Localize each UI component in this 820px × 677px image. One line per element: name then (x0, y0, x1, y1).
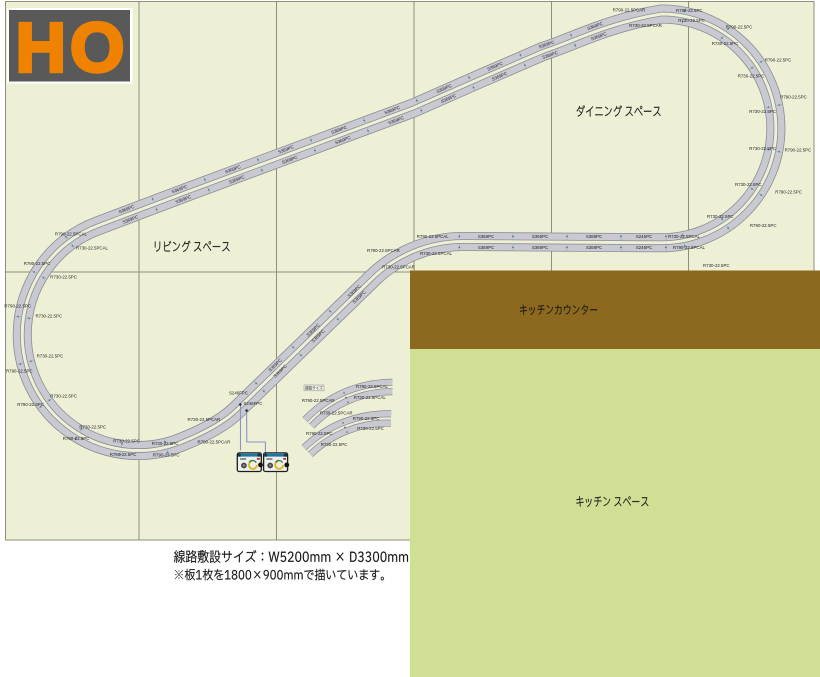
svg-text:R730-22.5PC: R730-22.5PC (37, 353, 64, 358)
svg-text:R730-22.5PC: R730-22.5PC (79, 424, 106, 429)
svg-text:R730-22.5PC: R730-22.5PC (707, 214, 734, 219)
svg-text:R730-22.5PC: R730-22.5PC (50, 393, 77, 398)
svg-text:R790-22.5PCAR: R790-22.5PCAR (367, 248, 400, 253)
svg-text:S246FPC: S246FPC (243, 401, 262, 406)
svg-text:R790-22.5PC: R790-22.5PC (153, 453, 180, 458)
svg-text:R790-22.5PC: R790-22.5PC (306, 431, 333, 436)
svg-text:S369PC: S369PC (532, 245, 548, 250)
svg-text:R790-22.5PC: R790-22.5PC (110, 452, 137, 457)
svg-text:R790-22.5PC: R790-22.5PC (785, 147, 812, 152)
svg-text:R790-22.5PC: R790-22.5PC (63, 436, 90, 441)
svg-text:R790-22.5PC: R790-22.5PC (4, 303, 31, 308)
svg-text:S246FPC: S246FPC (229, 391, 248, 396)
svg-text:S369PC: S369PC (586, 234, 602, 239)
svg-text:HO: HO (16, 9, 129, 87)
svg-text:S369PC: S369PC (478, 234, 494, 239)
svg-text:S246PC: S246PC (636, 234, 652, 239)
svg-text:R790-22.5PC: R790-22.5PC (765, 57, 792, 62)
svg-text:R730-22.5PCAL: R730-22.5PCAL (354, 395, 387, 400)
svg-text:R790-22.5PC: R790-22.5PC (353, 416, 380, 421)
svg-text:R730-22.5PCAR: R730-22.5PCAR (188, 417, 221, 422)
svg-text:R790-22.5PC: R790-22.5PC (17, 402, 44, 407)
svg-text:R790-22.5PC: R790-22.5PC (24, 261, 51, 266)
svg-text:R730-22.5PC: R730-22.5PC (35, 314, 62, 319)
svg-text:R730-22.5PC: R730-22.5PC (50, 275, 77, 280)
svg-text:R790-22.5PC: R790-22.5PC (726, 25, 753, 30)
svg-text:R790-22.5PCAL: R790-22.5PCAL (356, 384, 389, 389)
svg-text:R790-22.5PC: R790-22.5PC (775, 190, 802, 195)
svg-text:R790-22.5PCAL: R790-22.5PCAL (55, 232, 88, 237)
svg-text:R790-22.5PCAL: R790-22.5PCAL (673, 245, 706, 250)
svg-text:R730-22.5PC: R730-22.5PC (738, 74, 765, 79)
svg-text:R790-22.5PCAR: R790-22.5PCAR (613, 7, 646, 12)
svg-text:R730-22.5PC: R730-22.5PC (152, 441, 179, 446)
svg-text:R730-22.5PCAL: R730-22.5PCAL (668, 234, 701, 239)
svg-text:R790-22.5PC: R790-22.5PC (6, 368, 33, 373)
svg-text:R790-22.5PCAR: R790-22.5PCAR (302, 398, 335, 403)
svg-text:R730-22.5PC: R730-22.5PC (321, 442, 348, 447)
svg-text:R790-22.5PC: R790-22.5PC (676, 8, 703, 13)
svg-text:R730-22.5PC: R730-22.5PC (735, 182, 762, 187)
svg-text:R790-22.5PC: R790-22.5PC (750, 223, 777, 228)
svg-text:R730-22.5PC: R730-22.5PC (703, 263, 730, 268)
svg-text:R730-22.5PCAL: R730-22.5PCAL (420, 251, 453, 256)
svg-text:R730-22.5PC: R730-22.5PC (678, 18, 705, 23)
svg-text:S369PC: S369PC (586, 245, 602, 250)
svg-text:R730-22.5PCAR: R730-22.5PCAR (320, 411, 353, 416)
svg-text:R730-22.5PCAR: R730-22.5PCAR (382, 265, 415, 270)
svg-text:R730-22.5PCAR: R730-22.5PCAR (629, 23, 662, 28)
svg-text:R790-22.5PCAL: R790-22.5PCAL (417, 234, 450, 239)
svg-text:R730-22.5PC: R730-22.5PC (712, 41, 739, 46)
svg-text:R790-22.5PCAR: R790-22.5PCAR (198, 439, 231, 444)
svg-text:R730-22.5PC: R730-22.5PC (113, 439, 140, 444)
svg-text:S246PC: S246PC (636, 245, 652, 250)
svg-text:S369PC: S369PC (478, 245, 494, 250)
svg-text:R730-22.5PC: R730-22.5PC (749, 109, 776, 114)
svg-text:R730-22.5PCAL: R730-22.5PCAL (76, 246, 109, 251)
svg-text:S369PC: S369PC (532, 234, 548, 239)
svg-text:R730-22.5PC: R730-22.5PC (749, 146, 776, 151)
svg-text:R790-22.5PC: R790-22.5PC (780, 95, 807, 100)
svg-text:R730-22.5PC: R730-22.5PC (357, 426, 384, 431)
